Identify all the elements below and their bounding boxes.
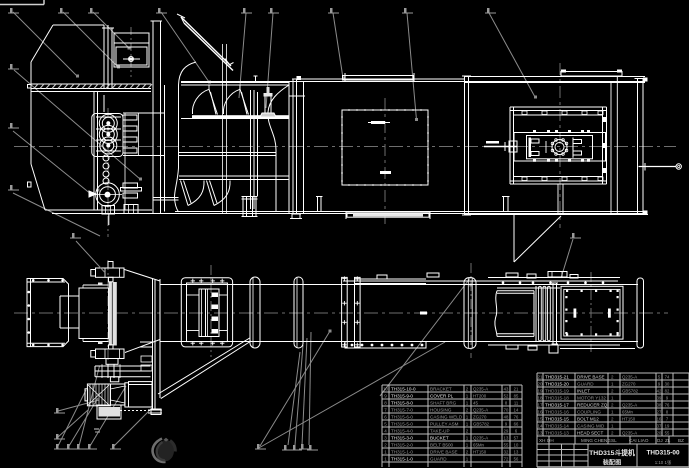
svg-text:76: 76: [514, 415, 519, 420]
svg-text:66: 66: [514, 422, 519, 427]
svg-text:XH: XH: [539, 438, 545, 443]
svg-text:TH315-2-0: TH315-2-0: [391, 443, 413, 448]
svg-text:DH: DH: [547, 438, 554, 443]
svg-text:19: 19: [537, 389, 543, 394]
svg-text:ZL: ZL: [665, 438, 671, 443]
svg-text:52: 52: [504, 394, 509, 399]
svg-text:Q235-A: Q235-A: [622, 403, 637, 408]
svg-text:Q235-A: Q235-A: [473, 436, 488, 441]
svg-text:43: 43: [504, 387, 509, 392]
svg-text:REDUCER ZQ: REDUCER ZQ: [577, 403, 608, 408]
svg-text:THD315-15: THD315-15: [545, 417, 569, 422]
svg-text:COUPLING: COUPLING: [577, 410, 601, 415]
svg-text:10: 10: [514, 443, 519, 448]
svg-text:82: 82: [665, 389, 670, 394]
svg-text:THD315斗提机: THD315斗提机: [589, 448, 635, 457]
svg-text:38: 38: [657, 403, 662, 408]
svg-text:HT150: HT150: [473, 450, 487, 455]
svg-text:57: 57: [514, 436, 519, 441]
svg-text:BELT B500: BELT B500: [430, 443, 454, 448]
svg-text:PULLEY ASM: PULLEY ASM: [430, 422, 459, 427]
svg-text:ZG270: ZG270: [622, 382, 636, 387]
svg-text:19: 19: [665, 424, 670, 429]
svg-text:SHAFT BRG: SHAFT BRG: [430, 401, 457, 406]
svg-text:Q235-A: Q235-A: [473, 387, 488, 392]
svg-text:CAI LIAO: CAI LIAO: [629, 438, 649, 443]
svg-text:HEAD SECT: HEAD SECT: [577, 431, 603, 436]
svg-text:27: 27: [657, 410, 662, 415]
svg-text:THD315-19: THD315-19: [545, 389, 569, 394]
svg-text:20: 20: [537, 382, 543, 387]
svg-text:85: 85: [514, 394, 519, 399]
svg-text:TH315-1-0: TH315-1-0: [391, 450, 413, 455]
svg-text:65Mn: 65Mn: [473, 443, 485, 448]
svg-text:16: 16: [537, 410, 543, 415]
svg-text:TH315-5-0: TH315-5-0: [391, 422, 413, 427]
svg-text:COVER PL: COVER PL: [430, 394, 454, 399]
svg-text:56: 56: [514, 457, 519, 462]
svg-text:Q235-A: Q235-A: [473, 408, 488, 413]
svg-text:16: 16: [657, 417, 662, 422]
svg-text:INLET: INLET: [577, 389, 590, 394]
svg-text:THD315-16: THD315-16: [545, 410, 569, 415]
svg-text:TH315-8-0: TH315-8-0: [391, 401, 413, 406]
svg-text:37: 37: [657, 424, 662, 429]
svg-text:TH315-9-0: TH315-9-0: [391, 394, 413, 399]
svg-text:32: 32: [504, 450, 509, 455]
svg-text:11: 11: [514, 401, 519, 406]
svg-text:1:10 1张: 1:10 1张: [655, 459, 672, 466]
svg-text:TH315-6-0: TH315-6-0: [391, 415, 413, 420]
svg-text:THD315-17: THD315-17: [545, 403, 569, 408]
svg-text:THD315-14: THD315-14: [545, 424, 569, 429]
svg-text:装配图: 装配图: [602, 459, 622, 467]
svg-text:45: 45: [473, 401, 478, 406]
svg-text:17: 17: [537, 403, 543, 408]
svg-text:TH315-1-0: TH315-1-0: [391, 457, 413, 462]
svg-text:10: 10: [383, 387, 389, 392]
svg-text:TAKE-UP: TAKE-UP: [430, 429, 450, 434]
svg-text:GB5782: GB5782: [473, 422, 490, 427]
svg-text:TH315-7-0: TH315-7-0: [391, 408, 413, 413]
svg-text:TH315-10-0: TH315-10-0: [391, 387, 416, 392]
svg-text:55: 55: [665, 431, 670, 436]
svg-text:Q235-A: Q235-A: [622, 375, 637, 380]
svg-text:THD315-00: THD315-00: [646, 450, 679, 457]
svg-text:THD315-18: THD315-18: [545, 396, 569, 401]
svg-text:THD315-21: THD315-21: [545, 375, 569, 380]
svg-text:CASING WELD: CASING WELD: [430, 415, 463, 420]
svg-text:29: 29: [504, 429, 509, 434]
svg-text:39: 39: [657, 396, 662, 401]
svg-text:SL: SL: [611, 438, 617, 443]
svg-text:13: 13: [537, 431, 543, 436]
svg-text:76: 76: [665, 403, 670, 408]
svg-text:HT200: HT200: [473, 394, 487, 399]
svg-text:18: 18: [537, 396, 543, 401]
svg-text:HT150: HT150: [622, 417, 636, 422]
svg-text:BUCKET: BUCKET: [430, 436, 449, 441]
svg-text:TH315-4-0: TH315-4-0: [391, 429, 413, 434]
svg-text:14: 14: [537, 424, 543, 429]
svg-text:Q235-A: Q235-A: [622, 431, 637, 436]
svg-text:DRIVE BASE: DRIVE BASE: [430, 450, 458, 455]
svg-text:55: 55: [504, 443, 509, 448]
svg-text:THD315-20: THD315-20: [545, 382, 569, 387]
svg-text:72: 72: [504, 457, 509, 462]
svg-text:MING CHENG: MING CHENG: [581, 438, 611, 443]
svg-text:65Mn: 65Mn: [622, 410, 634, 415]
svg-text:20: 20: [657, 431, 662, 436]
svg-text:GUARD: GUARD: [430, 457, 447, 462]
svg-text:70: 70: [504, 408, 509, 413]
svg-text:THD315-13: THD315-13: [545, 431, 569, 436]
svg-text:13: 13: [514, 450, 519, 455]
svg-text:42: 42: [657, 389, 662, 394]
svg-text:14: 14: [514, 408, 519, 413]
svg-text:CASING MID: CASING MID: [577, 424, 605, 429]
svg-text:BZ: BZ: [678, 438, 684, 443]
svg-text:21: 21: [514, 387, 519, 392]
svg-text:GB5782: GB5782: [622, 389, 639, 394]
svg-text:15: 15: [537, 417, 543, 422]
svg-text:GUARD: GUARD: [577, 382, 594, 387]
svg-text:DJ: DJ: [657, 438, 663, 443]
svg-text:MOTOR Y132: MOTOR Y132: [577, 396, 606, 401]
svg-text:HOUSING: HOUSING: [430, 408, 452, 413]
svg-text:BRACKET: BRACKET: [430, 387, 452, 392]
svg-text:21: 21: [537, 375, 543, 380]
svg-text:ZG270: ZG270: [473, 415, 487, 420]
svg-text:48: 48: [504, 415, 509, 420]
svg-text:30: 30: [665, 382, 670, 387]
svg-text:DRIVE BASE: DRIVE BASE: [577, 375, 605, 380]
svg-text:TH315-3-0: TH315-3-0: [391, 436, 413, 441]
svg-text:13: 13: [504, 436, 509, 441]
svg-text:74: 74: [665, 375, 670, 380]
svg-text:BOLT M12: BOLT M12: [577, 417, 599, 422]
